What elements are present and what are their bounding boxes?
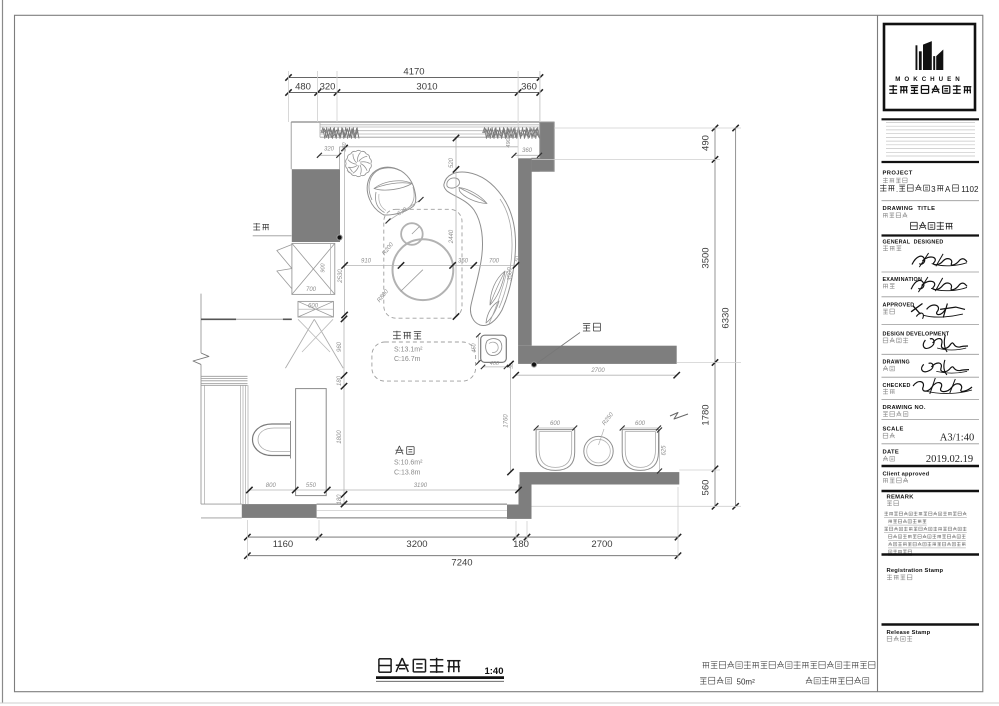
svg-text:320: 320 [320, 82, 336, 93]
svg-text:A3/1:40: A3/1:40 [940, 433, 974, 444]
svg-text:800: 800 [266, 483, 277, 489]
svg-text:DATE: DATE [883, 450, 900, 456]
svg-text:700: 700 [489, 259, 500, 265]
svg-text:DRAWING TITLE: DRAWING TITLE [883, 206, 936, 212]
svg-text:2530: 2530 [338, 269, 344, 284]
svg-text:1800: 1800 [337, 430, 343, 444]
svg-text:700: 700 [306, 287, 317, 293]
svg-text:3500: 3500 [701, 247, 712, 268]
svg-text:400: 400 [490, 361, 500, 367]
svg-text:2700: 2700 [590, 368, 605, 374]
svg-text:1102: 1102 [961, 185, 979, 194]
svg-text:600: 600 [550, 421, 561, 427]
svg-text:490: 490 [506, 137, 512, 147]
svg-text:1160: 1160 [273, 539, 293, 550]
svg-text:3200: 3200 [406, 539, 427, 550]
svg-text:C:13.8m: C:13.8m [394, 470, 421, 477]
svg-text:2440: 2440 [449, 229, 455, 244]
svg-text:50: 50 [515, 256, 521, 262]
svg-text:450: 450 [472, 342, 478, 352]
svg-text:6330: 6330 [721, 307, 732, 328]
svg-text:S:13.1m²: S:13.1m² [394, 347, 423, 354]
svg-text:3500: 3500 [508, 267, 514, 281]
svg-text:180: 180 [337, 375, 343, 386]
svg-text:2019.02.19: 2019.02.19 [926, 454, 973, 465]
svg-text:360: 360 [342, 141, 348, 151]
svg-text:DRAWING NO.: DRAWING NO. [883, 405, 926, 411]
svg-text:50m²: 50m² [737, 677, 756, 686]
svg-text:REMARK: REMARK [887, 494, 915, 500]
svg-text:625: 625 [662, 445, 668, 456]
svg-text:180: 180 [337, 494, 343, 505]
svg-text:PROJECT: PROJECT [883, 171, 913, 177]
svg-text:360: 360 [522, 148, 533, 154]
svg-text:960: 960 [337, 341, 343, 352]
svg-text:900: 900 [321, 262, 327, 272]
svg-text:S:10.6m²: S:10.6m² [394, 460, 423, 467]
svg-text:550: 550 [306, 483, 317, 489]
svg-text:1:40: 1:40 [484, 666, 503, 677]
svg-text:DESIGN DEVELOPMENT: DESIGN DEVELOPMENT [883, 332, 950, 338]
svg-text:4170: 4170 [403, 67, 424, 78]
svg-text:480: 480 [295, 82, 311, 93]
svg-text:600: 600 [308, 304, 319, 310]
svg-text:.: . [896, 185, 898, 194]
svg-text:7240: 7240 [451, 558, 472, 569]
svg-text:360: 360 [521, 82, 537, 93]
svg-text:320: 320 [324, 147, 335, 153]
svg-text:3190: 3190 [414, 483, 428, 489]
svg-text:560: 560 [701, 480, 712, 496]
svg-text:490: 490 [701, 135, 712, 151]
svg-text:600: 600 [635, 421, 646, 427]
svg-text:GENERAL DESIGNED: GENERAL DESIGNED [883, 240, 944, 246]
svg-text:3010: 3010 [416, 82, 437, 93]
svg-text:Registration Stamp: Registration Stamp [887, 568, 944, 574]
svg-text:3: 3 [931, 185, 936, 194]
svg-text:APPROVED: APPROVED [883, 302, 915, 308]
svg-text:180: 180 [513, 539, 529, 550]
svg-text:DRAWING: DRAWING [883, 360, 910, 366]
svg-text:910: 910 [361, 259, 372, 265]
svg-text:520: 520 [449, 157, 455, 168]
svg-text:2700: 2700 [591, 539, 612, 550]
svg-text:C:16.7m: C:16.7m [394, 356, 421, 363]
svg-text:SCALE: SCALE [883, 427, 904, 433]
svg-text:Release Stamp: Release Stamp [887, 630, 931, 636]
svg-text:Client approved: Client approved [883, 471, 930, 477]
svg-text:1760: 1760 [504, 414, 510, 428]
svg-text:1780: 1780 [701, 404, 712, 425]
svg-text:CHECKED: CHECKED [883, 383, 911, 389]
svg-text:MOKCHUEN: MOKCHUEN [895, 76, 963, 83]
svg-text:A: A [945, 185, 951, 194]
svg-text:350: 350 [458, 259, 469, 265]
